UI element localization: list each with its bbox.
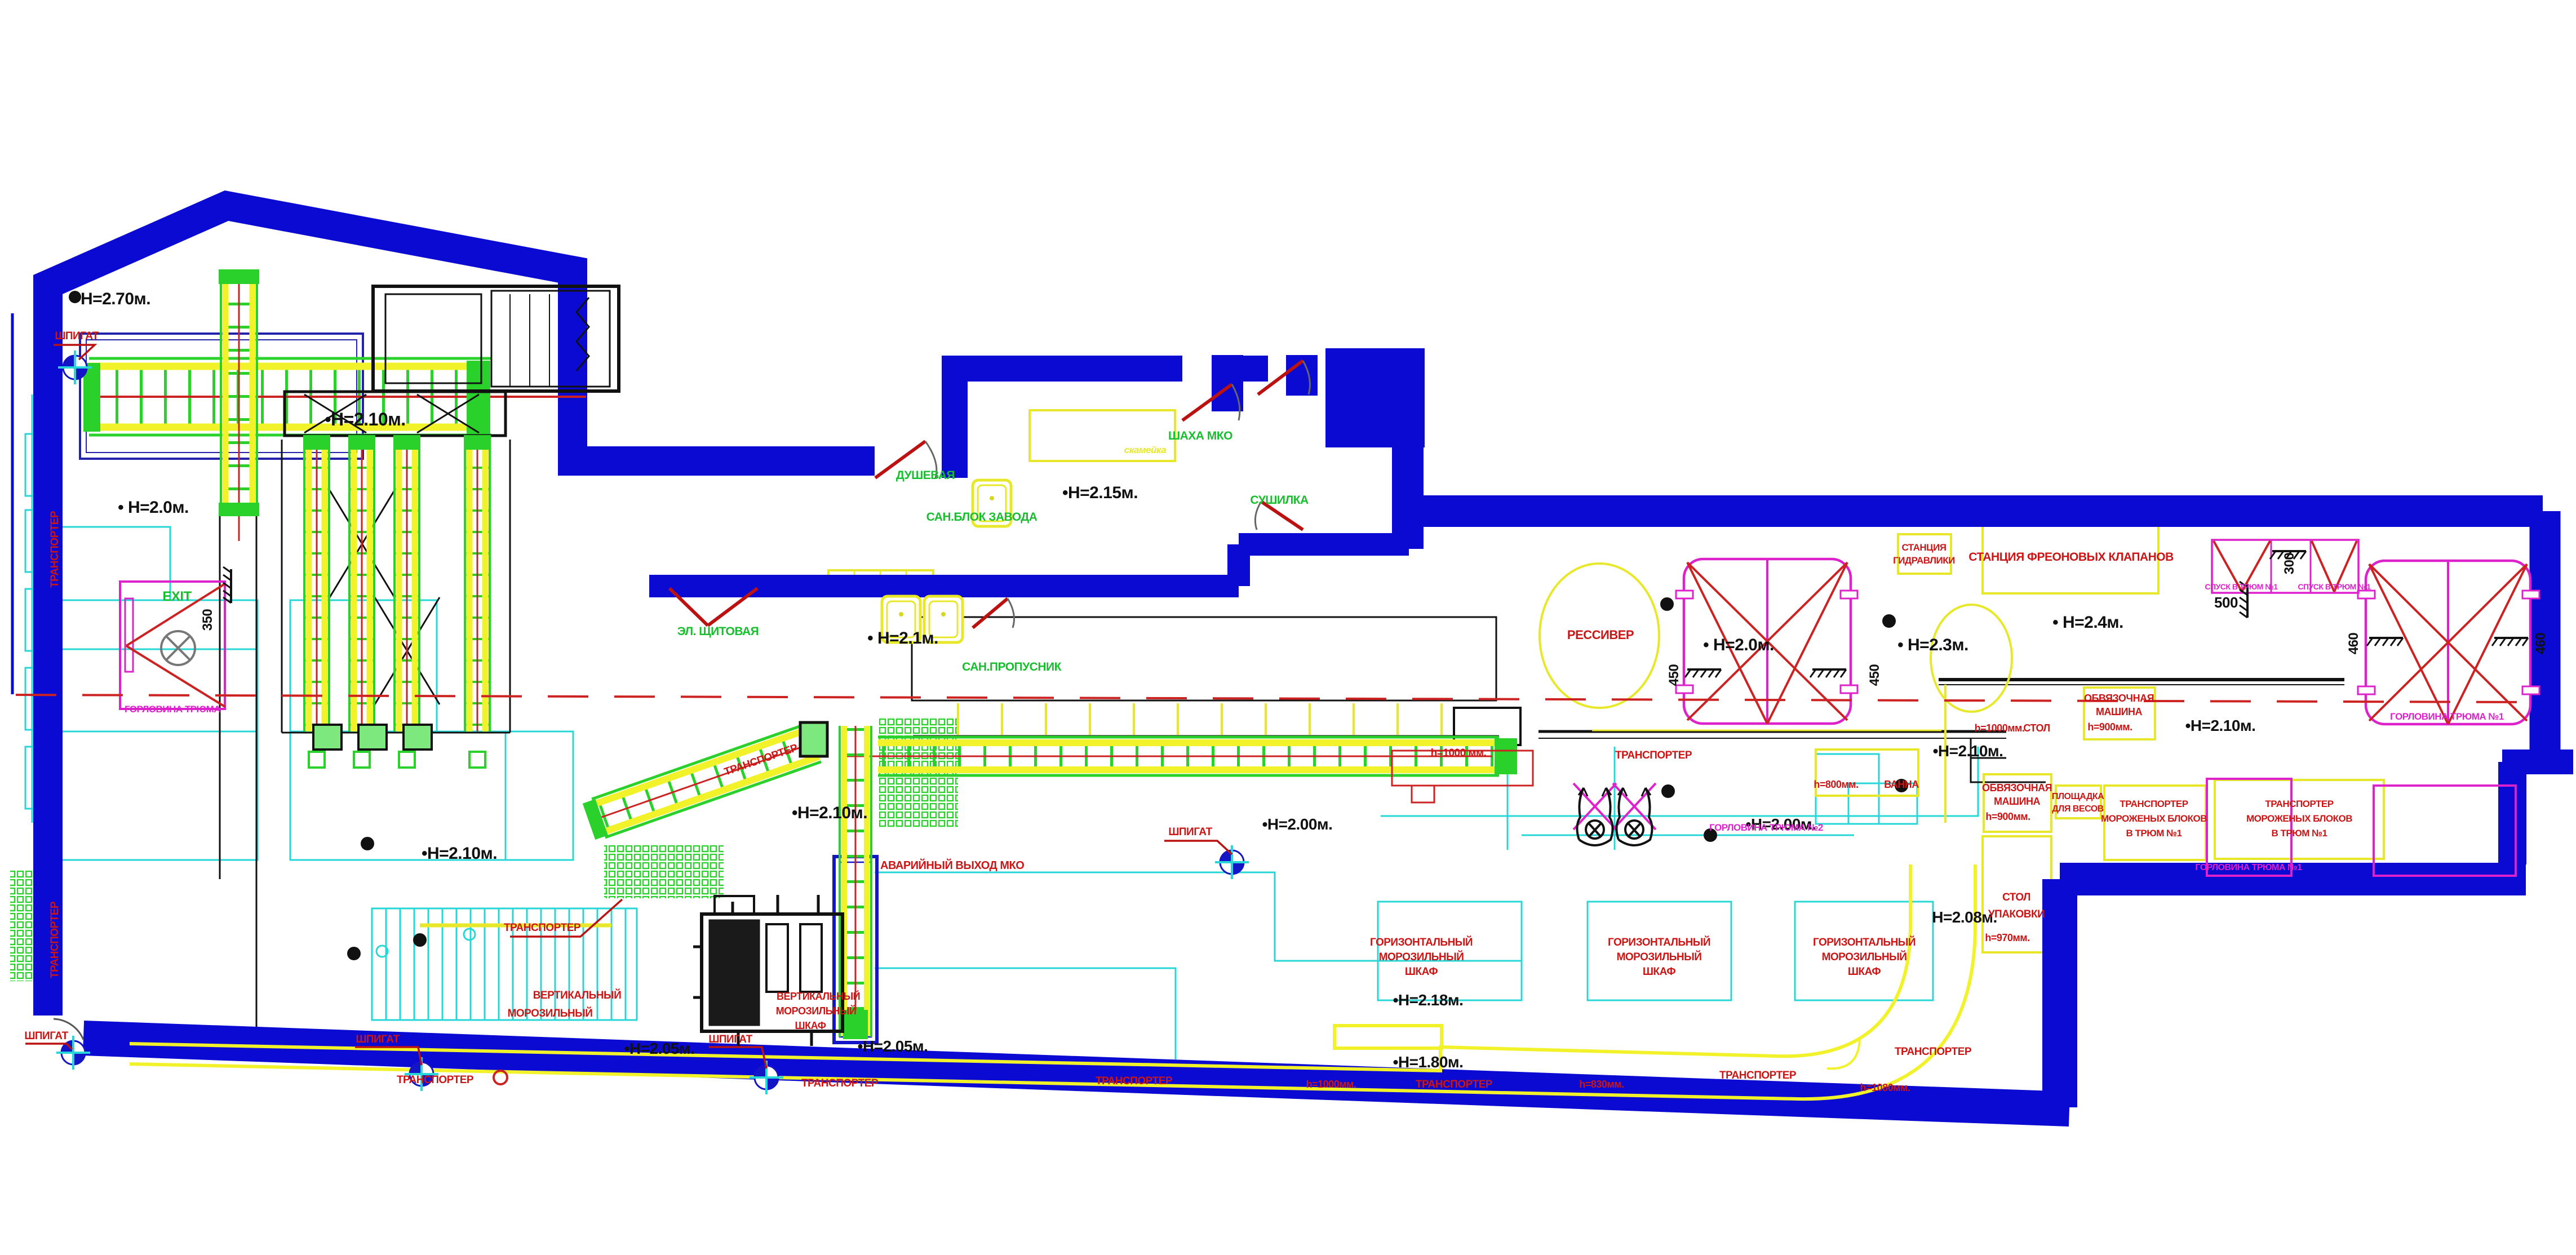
floor-label: •H=2.10м.	[325, 409, 405, 429]
floor-label: h=830мм.	[1579, 1079, 1624, 1090]
floor-label: ВАННА	[1884, 779, 1919, 790]
floor-label: ТРАНСПОРТЕР	[49, 901, 61, 978]
floor-label: МОРОЖЕНЫХ БЛОКОВ	[2246, 813, 2352, 824]
floor-label: •H=2.18м.	[1393, 991, 1464, 1009]
floor-label: ТРАНСПОРТЕР	[1615, 750, 1692, 761]
floor-label: В ТРЮМ №1	[2126, 828, 2182, 839]
floor-label: МАШИНА	[1994, 796, 2041, 807]
exit-hatch-box	[120, 567, 231, 709]
floor-label: •H=1.80м.	[1393, 1053, 1464, 1071]
floor-label: ШПИГАТ	[24, 1030, 68, 1042]
floor-label: ТРАНСПОРТЕР	[801, 1077, 879, 1089]
floor-label: 350	[200, 609, 215, 631]
floor-label: •H=2.05м.	[858, 1037, 928, 1055]
floor-label: h=970мм.	[1985, 932, 2029, 943]
floor-label: ШПИГАТ	[1168, 826, 1212, 838]
sanitary-fixtures	[882, 480, 1011, 642]
floor-label: ТРАНСПОРТЕР	[2265, 799, 2333, 809]
floor-label: h=900мм.	[2087, 721, 2132, 733]
floor-label: ПЛОЩАДКА	[2052, 792, 2104, 801]
floor-label: ОБВЯЗОЧНАЯ	[1982, 782, 2052, 793]
floor-label: ГИДРАВЛИКИ	[1893, 555, 1955, 566]
floor-label: • H=2.0м.	[118, 498, 189, 517]
floor-label: ШПИГАТ	[708, 1034, 752, 1045]
floor-label: ВЕРТИКАЛЬНЫЙ	[533, 989, 622, 1001]
floor-label: РЕССИВЕР	[1567, 628, 1634, 642]
floor-label: h=800мм.	[1814, 779, 1858, 790]
conveyor-diagonal	[582, 722, 824, 841]
floor-label: СТОЛ	[2023, 722, 2050, 734]
floor-label: ГОРЛОВИНА ТРЮМА №2	[1709, 822, 1823, 833]
floor-label: ШПИГАТ	[55, 330, 99, 342]
floor-label: ШКАФ	[1643, 966, 1675, 978]
deck-floor-plan: H=2.70м.•H=2.10м.• H=2.0м.•H=2.15м.• H=2…	[0, 0, 2576, 1255]
floor-label: ТРАНСПОРТЕР	[1096, 1075, 1173, 1087]
floor-label: СТОЛ	[2002, 892, 2030, 903]
floor-label: •H=2.15м.	[1062, 484, 1138, 502]
floor-label: • H=2.0м.	[1703, 636, 1774, 654]
floor-label: h=900мм.	[1985, 811, 2030, 822]
floor-label: EXIT	[162, 589, 192, 604]
floor-label: СТАНЦИЯ ФРЕОНОВЫХ КЛАПАНОВ	[1968, 551, 2174, 564]
floor-label: СПУСК В ТРЮМ №1	[2205, 582, 2278, 591]
floor-label: ДУШЕВАЯ	[896, 469, 955, 482]
floor-label: •H=2.00м.	[1262, 815, 1333, 833]
floor-label: ВЕРТИКАЛЬНЫЙ	[777, 990, 860, 1002]
floor-label: h=1000мм.	[1975, 722, 2025, 734]
floor-label: ГОРИЗОНТАЛЬНЫЙ	[1370, 936, 1473, 948]
floor-label: МОРОЗИЛЬНЫЙ	[1617, 951, 1702, 963]
floor-label: ТРАНСПОРТЕР	[1719, 1070, 1797, 1081]
floor-label: УПАКОВКИ	[1988, 908, 2045, 920]
floor-label: •H=2.10м.	[422, 844, 497, 863]
hold-hatch-lower-boxes	[2207, 779, 2516, 876]
floor-label: МОРОЗИЛЬНЫЙ	[1379, 951, 1464, 963]
cad-floor-plan-page: H=2.70м.•H=2.10м.• H=2.0м.•H=2.15м.• H=2…	[0, 0, 2576, 1255]
floor-label: H=2.08м.	[1932, 908, 1997, 926]
floor-label: ШКАФ	[1848, 966, 1881, 978]
floor-label: h=1080мм.	[1860, 1082, 1910, 1093]
floor-label: •H=2.10м.	[1933, 742, 2003, 760]
floor-label: ШКАФ	[1405, 966, 1438, 978]
floor-label: ГОРЛОВИНА ТРЮМА №1	[2195, 863, 2302, 872]
floor-label: 450	[1867, 664, 1882, 686]
floor-label: ТРАНСПОРТЕР	[504, 922, 581, 934]
floor-label: МОРОЗИЛЬНЫЙ	[776, 1005, 857, 1017]
floor-label: • H=2.1м.	[867, 629, 938, 648]
floor-label: МАШИНА	[2096, 706, 2143, 717]
floor-label: 460	[2346, 633, 2361, 655]
floor-label: •H=2.05м.	[624, 1040, 695, 1057]
floor-label: ГОРЛОВИНА ТРЮМА	[125, 704, 220, 715]
floor-label: МОРОЗИЛЬНЫЙ	[508, 1007, 593, 1019]
floor-label: САН.БЛОК ЗАВОДА	[926, 511, 1038, 524]
floor-label: ТРАНСПОРТЕР	[2120, 799, 2188, 809]
floor-label: ГОРЛОВИНА ТРЮМА №1	[2390, 711, 2504, 722]
floor-label: скамейка	[1124, 445, 1166, 455]
floor-label: ГОРИЗОНТАЛЬНЫЙ	[1608, 936, 1710, 948]
floor-label: H=2.70м.	[81, 290, 150, 308]
floor-label: ОБВЯЗОЧНАЯ	[2084, 693, 2154, 704]
floor-label: ЭЛ. ЩИТОВАЯ	[677, 625, 759, 638]
floor-label: ДЛЯ ВЕСОВ	[2052, 804, 2103, 814]
floor-label: • H=2.3м.	[1897, 636, 1968, 654]
floor-label: ШПИГАТ	[356, 1034, 400, 1045]
floor-label: СТАНЦИЯ	[1901, 542, 1946, 553]
floor-label: ШКАФ	[795, 1020, 826, 1031]
floor-label: 500	[2214, 594, 2238, 611]
floor-label: •H=2.10м.	[2185, 717, 2256, 734]
floor-label: В ТРЮМ №1	[2271, 828, 2327, 839]
floor-label: ШАХА МКО	[1168, 429, 1232, 442]
floor-label: АВАРИЙНЫЙ ВЫХОД МКО	[880, 858, 1024, 872]
labels-layer: H=2.70м.•H=2.10м.• H=2.0м.•H=2.15м.• H=2…	[24, 290, 2548, 1093]
floor-label: САН.ПРОПУСНИК	[962, 660, 1062, 673]
floor-label: СУШИЛКА	[1250, 494, 1309, 507]
floor-label: ТРАНСПОРТЕР	[49, 511, 61, 588]
conveyor-motor-box	[800, 722, 827, 756]
floor-label: h=1000мм.	[1306, 1079, 1356, 1090]
hold-hatch-1	[2358, 561, 2539, 724]
floor-label: h=1000 мм.	[1431, 747, 1487, 759]
floor-label: МОРОЗИЛЬНЫЙ	[1822, 951, 1907, 963]
floor-label: 450	[1666, 664, 1682, 686]
floor-label: МОРОЖЕНЫХ БЛОКОВ	[2101, 813, 2207, 824]
floor-label: СПУСК В ТРЮМ №1	[2298, 582, 2371, 591]
floor-label: 460	[2533, 633, 2548, 655]
floor-label: ТРАНСПОРТЕР	[1895, 1046, 1972, 1058]
floor-label: ТРАНСПОРТЕР	[1416, 1079, 1493, 1090]
freezer-columns	[303, 435, 491, 768]
floor-label: •H=2.10м.	[792, 804, 867, 822]
floor-label: ГОРИЗОНТАЛЬНЫЙ	[1813, 936, 1916, 948]
floor-label: 300	[2282, 553, 2297, 575]
floor-label: • H=2.4м.	[2052, 613, 2123, 632]
floor-label: ТРАНСПОРТЕР	[397, 1074, 474, 1086]
